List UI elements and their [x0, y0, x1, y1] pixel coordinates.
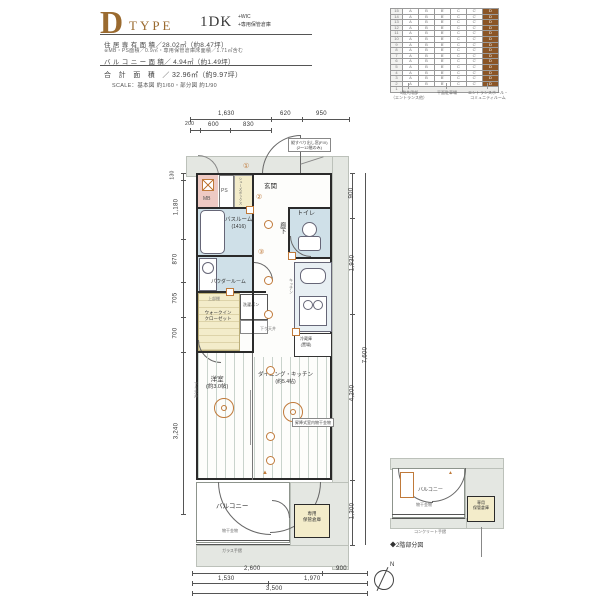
down-ceiling-left: 下り天井	[193, 382, 199, 398]
dim-top1-t4	[349, 117, 350, 122]
dim-right-v1: 900	[348, 188, 354, 199]
dim-bot2-v2: 1,970	[304, 576, 321, 582]
wic-label-line2: クローゼット	[200, 316, 236, 322]
wall-hall-left	[252, 173, 254, 353]
caption-leader-2	[446, 83, 447, 89]
table-caption-3: エントランスホール・ コミュニティルーム	[466, 90, 510, 100]
bedroom-label-size: (約3.0帖)	[206, 384, 228, 391]
wic-label-line1: ウォークイン	[200, 310, 236, 316]
dim-left-t2	[181, 180, 186, 181]
storage-label-line2: 保管倉庫	[297, 517, 327, 523]
compass-n-label: N	[390, 562, 395, 568]
spec-scale-line: SCALE：基本図 約1/60・部分図 約1/90	[112, 81, 217, 89]
spec-note-line: ※MB・PS面積／0.9㎡・専用保管倉庫床面積／1.71㎡含む	[104, 47, 243, 54]
caption-leader-1	[408, 83, 409, 89]
private-storage-label: 専用 保管倉庫	[297, 511, 327, 523]
dim-left-line	[183, 173, 184, 514]
balcony-rail	[196, 540, 290, 545]
dim-top1-t3	[302, 117, 303, 122]
pipe-space-label: PS	[221, 188, 228, 194]
dim-top2-t4	[271, 128, 272, 133]
dim-bot1-t3	[367, 571, 368, 576]
dim-top2-t1	[190, 128, 191, 133]
dim-bot2-v1: 1,530	[218, 576, 235, 582]
table-caption-1-line2: （エントランス他）	[390, 95, 428, 100]
circled-2: ②	[256, 193, 262, 201]
dim-left-v3: 870	[172, 254, 178, 265]
shoe-box-label: シューズボックス	[239, 177, 244, 206]
dim-right-t1	[350, 173, 355, 174]
toilet-label: トイレ	[297, 211, 315, 219]
dim-bot1-v2: 900	[336, 566, 347, 572]
meter-box-label: MB	[203, 196, 211, 202]
dim-left-t7	[181, 514, 186, 515]
below-balcony	[196, 545, 349, 567]
mini-balcony-label: バルコニー	[418, 486, 443, 493]
title-rule-bottom	[100, 65, 312, 66]
kitchen-stove	[299, 296, 327, 326]
bedroom-label: 洋室 (約3.0帖)	[206, 376, 228, 392]
table-caption-2-line1: 平面駐車場	[430, 90, 464, 95]
table-caption-3-line2: コミュニティルーム	[466, 95, 510, 100]
switch-sq-3	[292, 328, 300, 336]
dim-right-line	[352, 173, 353, 545]
mini-rail-label: コンクリート手摺	[414, 529, 446, 535]
down-ceiling-mid: 下り天井	[260, 326, 276, 332]
dim-bot1-t1	[192, 571, 193, 576]
bath-tub	[200, 210, 225, 254]
dim-right-t3	[350, 314, 355, 315]
position-table-wrap: 15ABB'CC'D14ABB'CC'D13ABB'CC'D12ABB'CC'D…	[390, 8, 499, 93]
wall-bedroom-top	[196, 351, 252, 353]
dim-bot2-t1	[192, 581, 193, 586]
dim-top2-v3: 830	[243, 122, 254, 128]
dim-right-t4	[350, 480, 355, 481]
dim-right-v3: 4,200	[349, 385, 355, 402]
dim-bot3-t2	[367, 591, 368, 596]
dim-top1-v2: 620	[280, 111, 291, 117]
circled-3: ③	[258, 248, 264, 256]
wic-shelf-label: 上部棚	[208, 296, 220, 302]
bath-label: バスルーム (1416)	[225, 217, 252, 231]
wall-entry-row	[196, 207, 252, 209]
wall-bath-bottom	[196, 255, 252, 257]
meter-box-icon	[202, 179, 214, 191]
dim-top1-v3: 950	[316, 111, 327, 117]
outlet-dot-5	[266, 432, 275, 441]
type-letter: D	[100, 4, 123, 41]
plan-plus-storage: +専用保管倉庫	[238, 21, 271, 28]
mini-rail	[392, 514, 465, 519]
outlet-dot-4	[266, 366, 275, 375]
mini-storage-label-line2: 保管倉庫	[469, 505, 493, 510]
dim-right-t2	[350, 218, 355, 219]
wall-toilet-top	[288, 207, 332, 209]
kitchen-label: キッチン	[288, 278, 294, 294]
floorplan-page: { "header": { "letter": "D", "type_word"…	[0, 0, 600, 600]
wic-label: ウォークイン クローゼット	[200, 310, 236, 322]
fridge-label: 冷蔵庫 (置場)	[300, 336, 312, 348]
mini-storage-leader	[481, 527, 482, 557]
outlet-dot-2	[264, 276, 273, 285]
vanity-basin	[202, 262, 214, 274]
balcony-label: バルコニー	[216, 503, 248, 511]
mini-storage-label: 専用 保管倉庫	[469, 500, 493, 510]
dim-top2-t2	[200, 128, 201, 133]
dk-label: ダイニング・キッチン (約5.4帖)	[258, 372, 313, 386]
outlet-dot-6	[266, 456, 275, 465]
laundry-hoist-note: 昇降式室内物干金物	[292, 418, 334, 427]
dim-left-t1	[181, 173, 186, 174]
dim-bot1-v1: 2,600	[244, 566, 261, 572]
fix-window-note-line2: (2〜12階のみ)	[291, 145, 328, 150]
dim-right-v4: 1,300	[349, 503, 355, 520]
plan-name: 1DK	[200, 14, 232, 31]
dim-bot1-t2	[322, 571, 323, 576]
dim-right-t5	[350, 545, 355, 546]
dim-top2-v1: 200	[185, 121, 194, 127]
dim-right-v2: 1,930	[349, 255, 355, 272]
kitchen-sink	[300, 268, 326, 284]
switch-sq-2	[288, 252, 296, 260]
dim-bot3-t1	[192, 591, 193, 596]
dim-left-v1: 130	[170, 170, 176, 179]
dim-left-v5: 700	[172, 328, 178, 339]
table-caption-2: 平面駐車場	[430, 90, 464, 95]
switch-sq-1	[246, 206, 254, 214]
mini-monohoshi-label: 物干金物	[416, 502, 432, 508]
mini-door-triangle: ▲	[448, 470, 453, 476]
bath-label-text: バスルーム	[225, 217, 252, 224]
bedroom-light-symbol	[214, 398, 234, 418]
divider-slide-door	[250, 390, 251, 445]
dim-left-t5	[181, 317, 186, 318]
dim-top2-t3	[230, 128, 231, 133]
outlet-dot-1	[264, 220, 273, 229]
door-triangle: ▲	[262, 470, 268, 476]
table-caption-1: 1階共用部 （エントランス他）	[390, 90, 428, 100]
dk-label-size: (約5.4帖)	[258, 379, 313, 386]
dim-bot3-v1: 3,500	[266, 586, 283, 592]
bath-size: (1416)	[225, 224, 252, 231]
dim-top2-v2: 600	[208, 122, 219, 128]
monohoshi-label: 物干金物	[222, 528, 238, 534]
outlet-dot-3	[264, 310, 273, 319]
caption-leader-3	[487, 83, 488, 89]
mini-caption: ◆2階部分図	[390, 540, 423, 549]
wall-toilet-left	[288, 207, 290, 258]
mini-gray-bottom	[390, 518, 467, 529]
switch-sq-4	[226, 288, 234, 296]
position-table-body: 15ABB'CC'D14ABB'CC'D13ABB'CC'D12ABB'CC'D…	[391, 9, 499, 93]
hallway-label: 廊下	[277, 222, 285, 234]
plan-plus-wic: +WIC	[238, 14, 251, 20]
mini-ac-unit	[400, 472, 414, 498]
divider-bedroom-dk	[252, 353, 253, 480]
genkan-label: 玄関	[264, 183, 277, 191]
spec-total-line: 合 計 面 積 ／ 32.96㎡（約9.97坪）	[104, 70, 242, 80]
dim-left-t6	[181, 352, 186, 353]
fix-window-note: 縦すべり出し窓(FIX) (2〜12階のみ)	[288, 138, 331, 152]
dim-left-v2: 1,180	[173, 199, 179, 216]
dim-top1-t2	[271, 117, 272, 122]
stove-burner-1	[303, 300, 313, 310]
stove-burner-2	[313, 300, 323, 310]
dim-bot3-line	[192, 593, 367, 594]
dim-left-v4: 705	[172, 293, 178, 304]
powder-label: パウダールーム	[211, 279, 246, 286]
dim-bot2-t3	[367, 581, 368, 586]
dim-left-v6: 3,240	[173, 423, 179, 440]
dim-left-t4	[181, 282, 186, 283]
glass-rail-label: ガラス手摺	[222, 548, 242, 554]
title-rule-top	[100, 34, 312, 35]
dim-top1-line	[190, 119, 350, 120]
position-table: 15ABB'CC'D14ABB'CC'D13ABB'CC'D12ABB'CC'D…	[390, 8, 499, 93]
dim-top1-v1: 1,630	[218, 111, 235, 117]
fridge-label-line2: (置場)	[300, 342, 312, 348]
dim-left-t3	[181, 239, 186, 240]
type-word: TYPE	[129, 18, 174, 34]
dim-bot2-line	[192, 583, 367, 584]
toilet-bowl	[302, 222, 317, 237]
circled-1: ①	[243, 162, 249, 170]
dim-right-total: 7,600	[362, 347, 368, 364]
dim-bot1-line	[192, 573, 367, 574]
